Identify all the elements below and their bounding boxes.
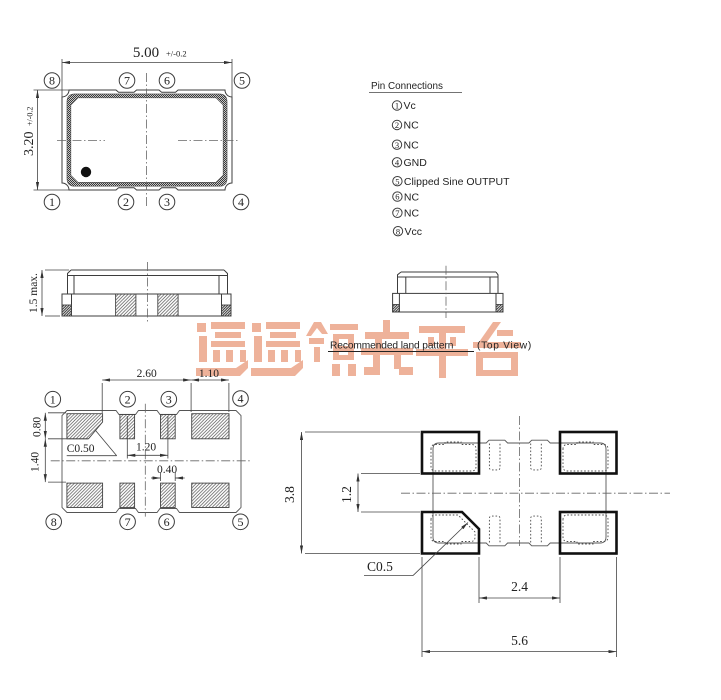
svg-text:Vc: Vc: [404, 100, 416, 112]
svg-text:3.20: 3.20: [22, 132, 37, 157]
svg-text:2.4: 2.4: [511, 579, 528, 594]
svg-text:1: 1: [395, 101, 399, 111]
svg-text:5: 5: [239, 74, 245, 88]
svg-text:1.20: 1.20: [136, 442, 156, 454]
svg-text:7: 7: [395, 208, 399, 218]
svg-text:Vcc: Vcc: [405, 226, 423, 238]
svg-text:1.10: 1.10: [199, 368, 219, 380]
svg-text:1: 1: [50, 392, 56, 406]
svg-text:4: 4: [238, 392, 244, 406]
svg-text:Recommended land pattern: Recommended land pattern: [330, 341, 453, 352]
svg-text:NC: NC: [404, 208, 420, 220]
svg-text:2: 2: [395, 120, 399, 130]
svg-text:Pin Connections: Pin Connections: [371, 81, 443, 92]
svg-text:NC: NC: [404, 120, 420, 132]
svg-text:8: 8: [49, 74, 55, 88]
svg-text:(Top View): (Top View): [477, 341, 532, 352]
svg-text:1: 1: [49, 195, 55, 209]
svg-text:Clipped Sine OUTPUT: Clipped Sine OUTPUT: [404, 176, 510, 188]
svg-text:1.40: 1.40: [30, 452, 42, 472]
svg-text:2: 2: [125, 392, 131, 406]
svg-text:C0.50: C0.50: [67, 443, 95, 455]
svg-text:GND: GND: [404, 157, 428, 169]
svg-text:NC: NC: [404, 139, 420, 151]
svg-text:7: 7: [125, 515, 131, 529]
svg-text:8: 8: [51, 515, 57, 529]
svg-text:3: 3: [395, 140, 399, 150]
svg-text:8: 8: [396, 226, 400, 236]
svg-text:5.6: 5.6: [511, 633, 528, 648]
svg-text:1.5 max.: 1.5 max.: [28, 273, 40, 313]
svg-text:2: 2: [123, 195, 129, 209]
svg-text:6: 6: [395, 192, 399, 202]
svg-text:6: 6: [164, 74, 170, 88]
svg-text:5: 5: [238, 515, 244, 529]
svg-text:6: 6: [164, 515, 170, 529]
svg-text:0.40: 0.40: [157, 464, 177, 476]
svg-text:3: 3: [166, 392, 172, 406]
svg-text:3.8: 3.8: [282, 486, 297, 503]
svg-text:5.00: 5.00: [133, 45, 159, 61]
svg-text:7: 7: [124, 74, 130, 88]
svg-text:1.2: 1.2: [339, 486, 354, 503]
svg-text:C0.5: C0.5: [367, 559, 393, 574]
svg-text:5: 5: [395, 176, 399, 186]
svg-text:4: 4: [238, 195, 244, 209]
svg-text:+/-0.2: +/-0.2: [26, 107, 35, 126]
svg-text:3: 3: [164, 195, 170, 209]
svg-text:+/-0.2: +/-0.2: [166, 49, 187, 59]
svg-text:NC: NC: [404, 191, 420, 203]
svg-text:2.60: 2.60: [137, 368, 157, 380]
svg-text:0.80: 0.80: [32, 417, 44, 437]
